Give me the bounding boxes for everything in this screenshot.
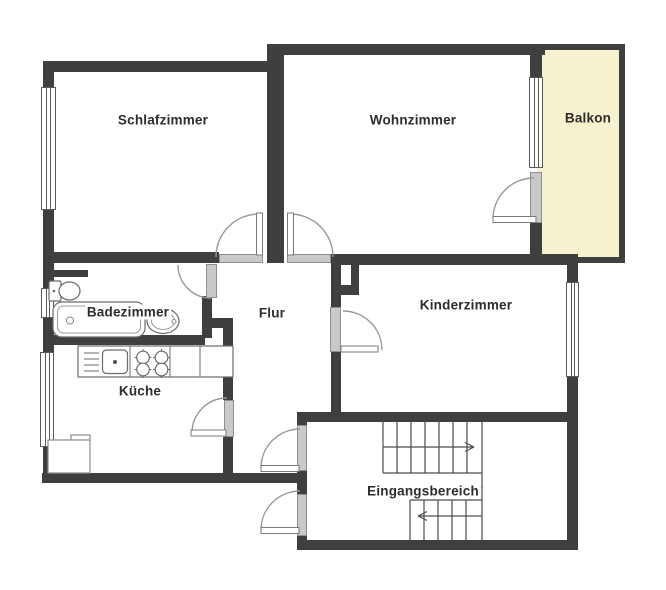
door-leaves (191, 213, 536, 534)
room-label-kueche: Küche (117, 384, 163, 399)
room-label-flur: Flur (259, 306, 285, 321)
stairs-icon (383, 422, 482, 540)
plan-graphics (0, 0, 666, 590)
door-leaf-kinderzimmer (341, 346, 378, 352)
door-arc-eingang-oben (261, 429, 300, 468)
stairs-lower-steps (410, 500, 466, 540)
room-label-wohnzimmer: Wohnzimmer (370, 113, 457, 128)
room-label-schlafzimmer: Schlafzimmer (118, 113, 208, 128)
toilet-icon (49, 281, 80, 301)
floor-plan: Schlafzimmer Wohnzimmer Balkon Badezimme… (0, 0, 666, 590)
door-arc-schlafzimmer (216, 214, 259, 257)
room-label-eingangsbereich: Eingangsbereich (365, 484, 481, 499)
door-leaf-eingang-oben (261, 466, 299, 472)
room-label-badezimmer: Badezimmer (85, 305, 171, 320)
door-leaf-kueche (191, 430, 226, 436)
room-label-kinderzimmer: Kinderzimmer (420, 298, 512, 313)
room-label-balkon: Balkon (565, 111, 611, 126)
door-arc-kueche (192, 398, 227, 433)
door-leaf-wohnzimmer (288, 213, 294, 255)
kitchen-unit-icon (48, 435, 90, 473)
door-arc-kinderzimmer (343, 311, 382, 350)
door-leaf-eingang-unten (261, 528, 299, 534)
door-arc-badezimmer (178, 265, 211, 298)
door-leaf-balkon (493, 217, 536, 223)
kitchen-fixtures (48, 346, 233, 473)
door-arc-eingang-unten (261, 491, 300, 530)
door-arc-balkon (493, 178, 534, 219)
door-arc-wohnzimmer (290, 214, 333, 257)
door-leaf-schlafzimmer (257, 213, 263, 255)
stairs-down-arrow (418, 512, 482, 521)
